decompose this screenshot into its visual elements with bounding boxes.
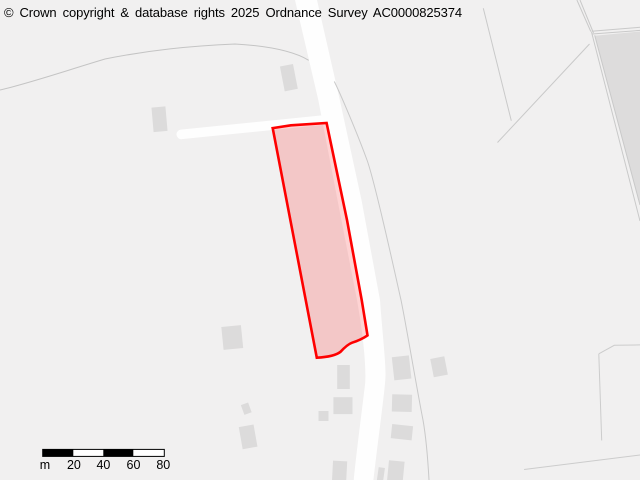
svg-text:60: 60 [127, 458, 141, 472]
svg-text:m: m [40, 458, 50, 472]
svg-text:40: 40 [96, 458, 110, 472]
svg-text:20: 20 [67, 458, 81, 472]
svg-text:80: 80 [156, 458, 170, 472]
